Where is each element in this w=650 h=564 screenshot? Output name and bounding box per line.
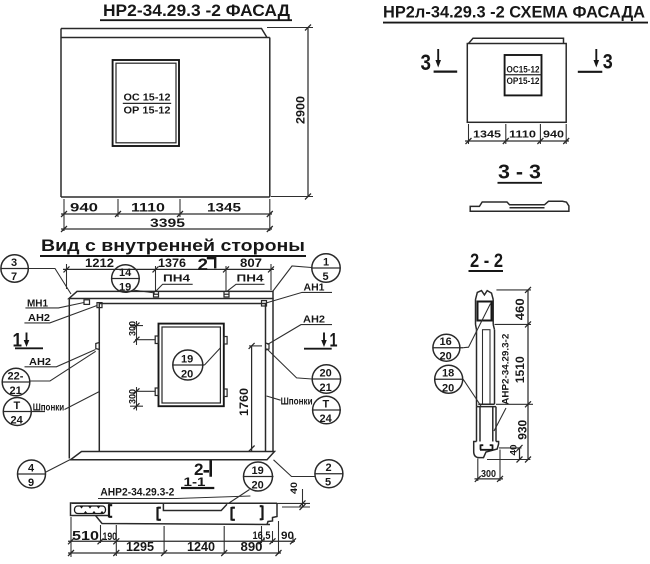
- svg-text:2 - 2: 2 - 2: [470, 251, 503, 272]
- svg-text:21: 21: [10, 385, 22, 397]
- svg-text:22-: 22-: [8, 371, 24, 383]
- svg-text:1: 1: [323, 257, 329, 269]
- svg-text:Т: Т: [323, 399, 330, 411]
- svg-text:ПН4: ПН4: [237, 273, 264, 285]
- svg-text:1510: 1510: [515, 356, 527, 383]
- svg-text:1376: 1376: [158, 258, 186, 270]
- svg-text:19: 19: [181, 354, 193, 366]
- svg-text:1212: 1212: [85, 258, 114, 270]
- svg-text:20: 20: [320, 368, 332, 380]
- svg-text:НР2л-34.29.3 -2 СХЕМА ФАСАДА: НР2л-34.29.3 -2 СХЕМА ФАСАДА: [383, 3, 645, 22]
- svg-text:3395: 3395: [150, 218, 186, 230]
- svg-text:40: 40: [289, 482, 300, 494]
- svg-text:2: 2: [198, 256, 209, 274]
- svg-text:300: 300: [127, 389, 138, 404]
- svg-text:510: 510: [72, 529, 99, 543]
- svg-text:ОР 15-12: ОР 15-12: [124, 105, 171, 117]
- svg-text:ОС15-12: ОС15-12: [507, 65, 540, 76]
- svg-text:3: 3: [603, 51, 613, 74]
- svg-text:24: 24: [320, 413, 333, 425]
- svg-text:3: 3: [421, 50, 432, 75]
- svg-text:Т: Т: [14, 400, 21, 412]
- svg-text:АНР2-34.29.3-2: АНР2-34.29.3-2: [100, 487, 174, 499]
- svg-text:ОС 15-12: ОС 15-12: [124, 92, 171, 104]
- svg-text:2900: 2900: [296, 96, 308, 124]
- svg-text:18: 18: [442, 368, 454, 380]
- svg-text:16: 16: [440, 336, 452, 348]
- svg-text:20: 20: [442, 382, 454, 394]
- svg-text:1240: 1240: [187, 540, 215, 554]
- svg-text:НР2-34.29.3 -2 ФАСАД: НР2-34.29.3 -2 ФАСАД: [103, 1, 290, 20]
- svg-text:19: 19: [252, 465, 264, 477]
- svg-text:460: 460: [515, 298, 527, 320]
- svg-text:АН2: АН2: [303, 314, 325, 326]
- svg-text:2: 2: [326, 462, 332, 474]
- svg-text:21: 21: [320, 382, 332, 394]
- svg-text:890: 890: [241, 540, 263, 554]
- svg-text:807: 807: [240, 258, 262, 270]
- svg-text:20: 20: [181, 369, 193, 381]
- svg-text:АН2: АН2: [29, 356, 51, 368]
- svg-text:Шпонки: Шпонки: [33, 402, 64, 414]
- svg-text:АНР2-34.29.3-2: АНР2-34.29.3-2: [501, 334, 512, 405]
- svg-text:940: 940: [543, 129, 564, 141]
- svg-text:АН1: АН1: [304, 282, 325, 294]
- svg-text:1110: 1110: [509, 129, 536, 141]
- svg-text:20: 20: [440, 351, 452, 363]
- svg-text:1110: 1110: [131, 203, 165, 215]
- svg-text:24: 24: [11, 415, 24, 427]
- svg-text:14: 14: [119, 267, 132, 279]
- svg-text:940: 940: [70, 203, 98, 215]
- svg-text:1295: 1295: [126, 540, 154, 554]
- svg-text:40: 40: [509, 445, 520, 456]
- svg-text:АН2: АН2: [28, 312, 50, 324]
- svg-text:300: 300: [127, 321, 138, 336]
- svg-text:930: 930: [518, 420, 530, 440]
- svg-text:20: 20: [252, 480, 264, 492]
- svg-text:Вид с внутренней стороны: Вид с внутренней стороны: [41, 236, 305, 255]
- svg-text:1345: 1345: [473, 129, 501, 141]
- svg-text:5: 5: [325, 477, 331, 489]
- svg-text:ОР15-12: ОР15-12: [507, 76, 540, 87]
- svg-text:1: 1: [330, 331, 338, 352]
- svg-text:4: 4: [28, 463, 35, 475]
- svg-text:7: 7: [11, 271, 17, 283]
- svg-text:3 - 3: 3 - 3: [498, 162, 541, 184]
- svg-text:ПН4: ПН4: [163, 273, 190, 285]
- svg-text:9: 9: [28, 477, 34, 489]
- svg-text:Шпонки: Шпонки: [281, 396, 313, 408]
- svg-text:1760: 1760: [239, 388, 251, 416]
- svg-text:90: 90: [281, 530, 294, 542]
- svg-text:300: 300: [481, 469, 496, 480]
- svg-text:3: 3: [11, 257, 17, 269]
- svg-text:190: 190: [103, 531, 118, 543]
- svg-text:1345: 1345: [207, 203, 242, 215]
